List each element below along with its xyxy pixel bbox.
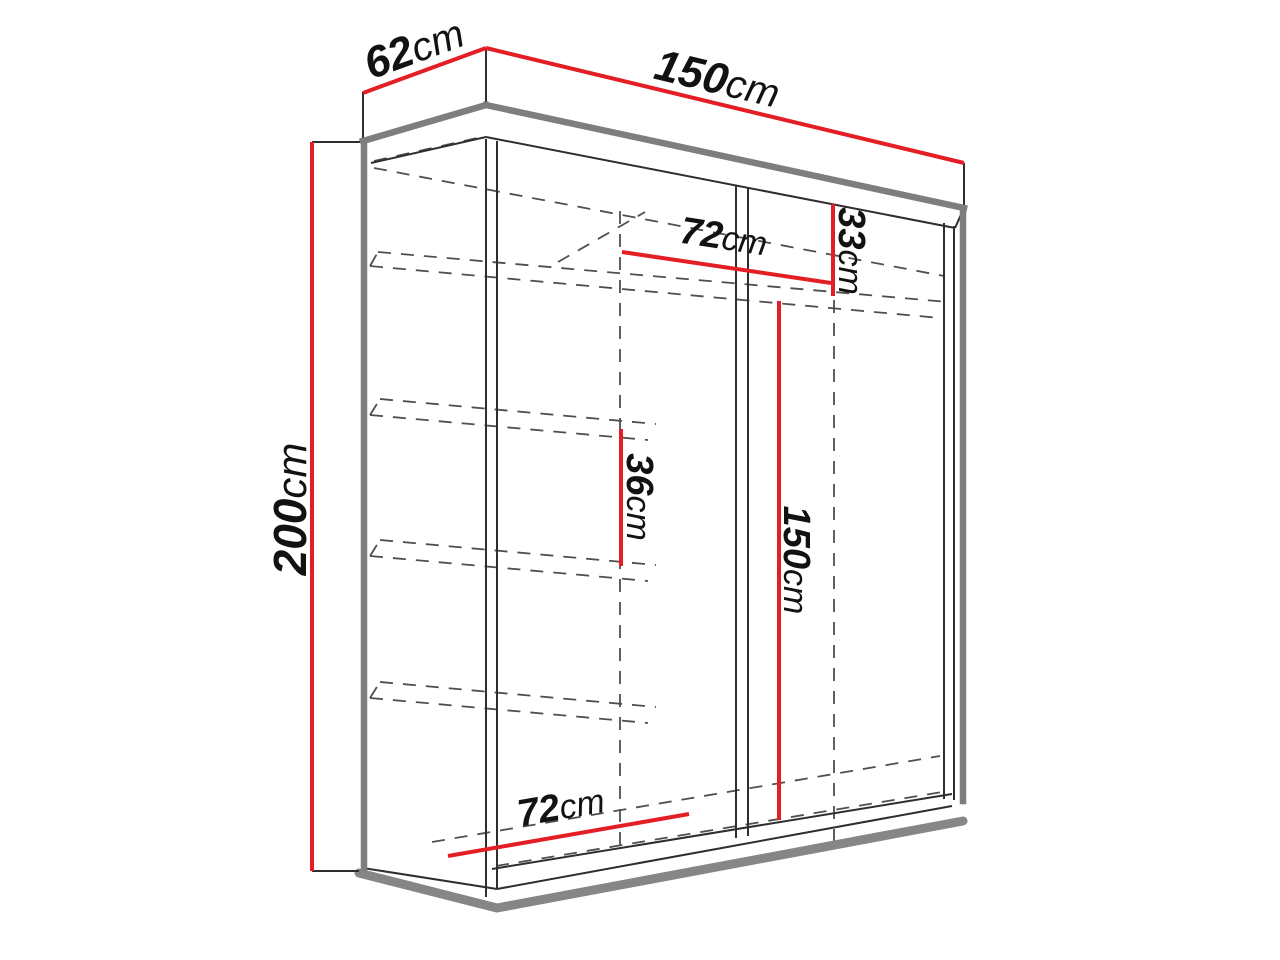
- dimension-value: 150: [775, 506, 817, 569]
- dimension-unit: cm: [268, 443, 315, 499]
- floor-shadow: [359, 821, 963, 908]
- shelf4-front-dashed: [370, 698, 648, 723]
- ceiling-depth-left-dashed: [374, 136, 486, 161]
- shelf3-side-dashed: [370, 540, 380, 556]
- dimension-unit: cm: [776, 569, 814, 614]
- crown-bottom-front-line: [486, 137, 955, 228]
- crown-bottom-left-line: [371, 137, 486, 163]
- cabinet-thick-edges: [363, 105, 964, 868]
- left-panel-top-edge: [363, 105, 486, 141]
- dimension-unit: cm: [831, 249, 869, 294]
- dimension-value: 200: [264, 498, 316, 576]
- dimension-label-shelf-spacing: 36cm: [618, 453, 660, 541]
- dimension-label-width: 150cm: [650, 40, 785, 117]
- shelf4-side-dashed: [370, 682, 380, 698]
- shelf3-front-dashed: [370, 556, 648, 581]
- dimension-label-upper-width: 72cm: [677, 210, 770, 265]
- dimension-unit: cm: [556, 782, 607, 827]
- dimension-value: 72: [677, 210, 725, 258]
- dimension-value: 33: [830, 207, 872, 249]
- shelf2-front-dashed: [370, 415, 648, 440]
- cabinet-shadow: [359, 821, 963, 908]
- dimension-label-hanging-height: 150cm: [775, 506, 817, 615]
- wardrobe-dimension-diagram: 62cm 150cm 200cm 33cm 72cm 150cm 36cm 7: [0, 0, 1280, 960]
- dimension-unit: cm: [619, 495, 657, 540]
- dimension-label-lower-width: 72cm: [514, 779, 608, 835]
- dimension-label-height: 200cm: [264, 443, 316, 577]
- dimension-label-top-compartment: 33cm: [830, 207, 872, 295]
- shelf2-side-dashed: [370, 399, 380, 415]
- floor-back-dashed: [432, 756, 940, 842]
- dimension-value: 36: [618, 453, 660, 496]
- dimension-value: 150: [650, 40, 733, 105]
- dimension-unit: cm: [719, 219, 770, 263]
- shelf1-side-dashed: [370, 252, 378, 266]
- dimension-label-depth: 62cm: [358, 8, 471, 89]
- front-top-edge: [486, 105, 964, 208]
- dimension-value: 72: [514, 787, 563, 836]
- wardrobe-diagram-canvas: 62cm 150cm 200cm 33cm 72cm 150cm 36cm 7: [0, 0, 1280, 960]
